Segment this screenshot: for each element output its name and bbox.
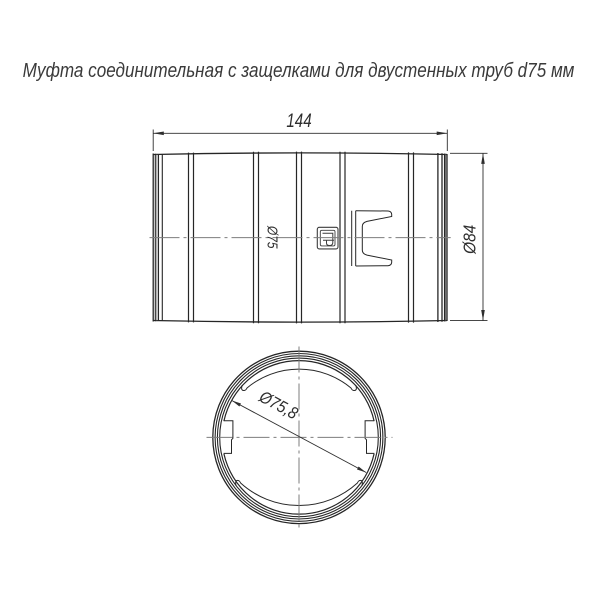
svg-text:Ø75,8: Ø75,8: [255, 388, 300, 424]
svg-text:Муфта соединительная с защелка: Муфта соединительная с защелками для дву…: [23, 59, 575, 82]
svg-text:Ø75: Ø75: [264, 225, 281, 249]
svg-text:144: 144: [286, 109, 311, 131]
svg-text:Ø84: Ø84: [461, 225, 480, 255]
